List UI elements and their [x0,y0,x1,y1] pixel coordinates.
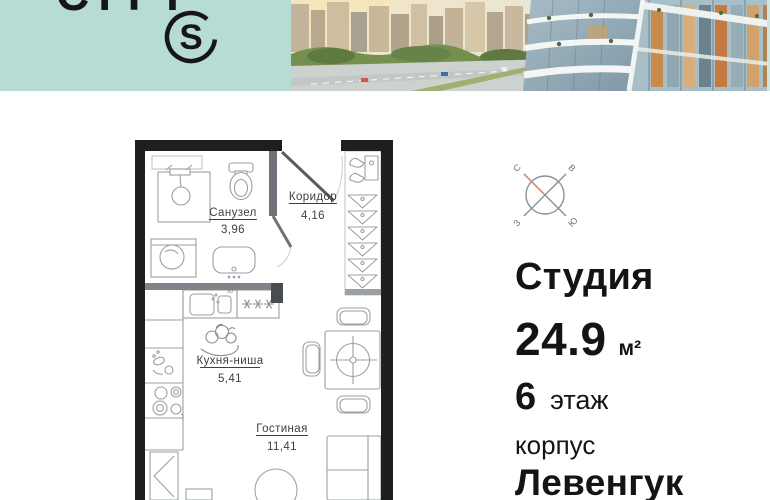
toilet-icon [229,163,253,200]
bottom-unit [186,489,212,500]
dishes-icons [153,351,173,374]
room-name-bathroom: Санузел [209,207,257,219]
wall-left [135,140,145,500]
floor-value: 6 [515,376,536,419]
room-name-corridor: Коридор [289,191,337,203]
wall-right [381,140,393,500]
room-area-corridor: 4,16 [301,210,325,222]
cabinet-icon [365,156,378,180]
sofa-icon [327,436,381,500]
floor-row: 6 этаж [515,376,608,419]
compass: С В З Ю [511,162,580,229]
burner-icons [153,387,183,419]
wardrobe [345,151,381,295]
washing-machine-icon [151,239,196,277]
area-value: 24.9 [515,312,607,366]
food-sketch [201,324,238,355]
room-area-bathroom: 3,96 [221,224,245,236]
floor-plan: Санузел 3,96 Коридор 4,16 Кухня-ниша 5,4… [0,0,770,500]
kitchen-column [145,290,183,450]
compass-north-needle [524,174,545,195]
room-area-kitchen: 5,41 [218,373,242,385]
compass-north-label: С [511,162,523,174]
dining-table-icon [303,308,380,413]
bathroom-door-arc [277,247,291,267]
floor-label: этаж [550,385,608,416]
room-area-living: 11,41 [267,441,297,453]
kitchen-fixtures [145,290,279,500]
bath-sink-icon [213,247,255,278]
compass-west-label: З [511,218,522,229]
pouf-icon [255,469,297,500]
building-label: корпус [515,431,684,460]
duct-shaft [152,156,202,169]
area-unit: м² [619,337,642,361]
listing-card: CITY S [0,0,770,500]
room-name-living: Гостиная [256,423,307,435]
building-name: Левенгук [515,463,684,500]
compass-east-label: В [566,162,577,173]
tall-cabinet-icon [150,452,178,500]
shower-icon [158,165,210,222]
wall-top-left [135,140,282,151]
living-fixtures [255,308,381,500]
room-labels: Санузел 3,96 Коридор 4,16 Кухня-ниша 5,4… [196,191,337,453]
sink-note: 90° [227,289,235,295]
compass-south-label: Ю [566,215,580,229]
apartment-type-title: Студия [515,256,654,299]
bathroom-door [273,216,291,247]
building-block: корпус Левенгук [515,431,684,500]
area-row: 24.9 м² [515,312,641,366]
room-name-kitchen: Кухня-ниша [196,355,263,367]
wardrobe-end-wall [345,289,381,295]
